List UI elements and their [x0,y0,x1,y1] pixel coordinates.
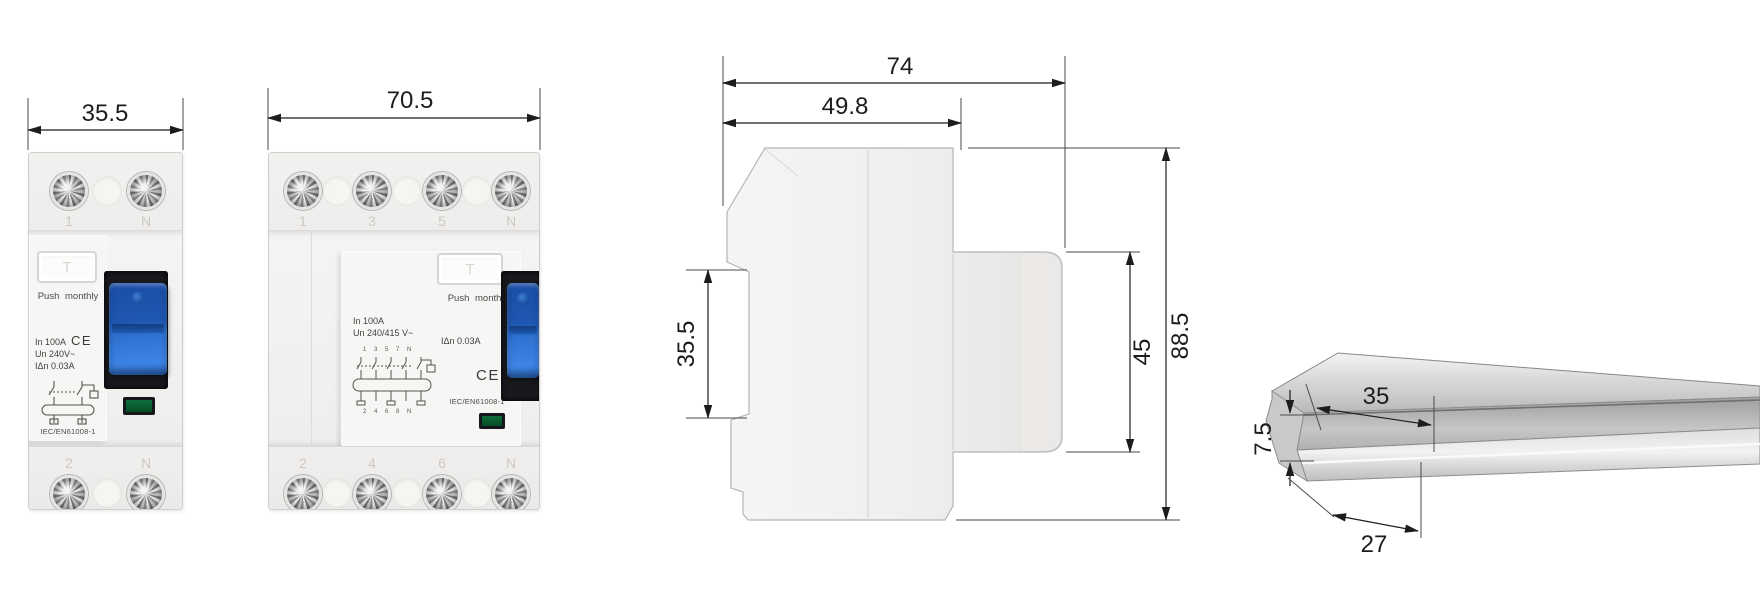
terminal-screw [127,172,165,210]
seal-plug [93,479,121,507]
terminal-screw [353,172,391,210]
terminal-label: N [504,213,518,229]
terminal-label: 1 [62,213,76,229]
test-button-letter: T [62,259,71,276]
dim-label-70-5: 70.5 [387,87,434,114]
ratings-text-2p: In 100ACE Un 240V~ IΔn 0.03A [35,335,92,372]
top-terminal-block-4p: 1 3 5 N [269,153,539,231]
dim-label-49-8: 49.8 [822,93,869,120]
seal-plug [463,177,491,205]
toggle-switch-4p [507,283,539,378]
indicator-lens-green [126,400,152,412]
wiring-diagram-2p [34,379,106,425]
terminal-label: 3 [365,213,379,229]
terminal-screw [50,475,88,510]
standard-label: IEC/EN61008-1 [31,427,105,436]
ratings-text-4p: In 100A Un 240/415 V~ [353,315,413,339]
terminal-screw [284,172,322,210]
residual-current: IΔn 0.03A [441,335,481,347]
indicator-lens-green [482,416,502,426]
test-button: T [437,253,503,285]
dim-label-35-5-side: 35.5 [673,321,700,368]
wiring-diagram-4p [349,355,437,407]
din-rail-drawing [1266,353,1760,481]
front-face-2p: T Push monthly In 100ACE Un 240V~ IΔn 0.… [29,231,182,446]
status-indicator-4p [479,413,505,429]
terminal-label: 5 [435,213,449,229]
toggle-switch-2p [109,283,167,375]
rated-current: In 100A [35,337,66,347]
wiring-labels-bottom: 2 4 6 8 N [363,409,414,415]
terminal-screw [353,475,391,510]
seal-plug [463,479,491,507]
seal-plug [323,479,351,507]
dim-4pole-width: 70.5 [268,87,540,150]
seal-plug [393,177,421,205]
wiring-labels-top: 1 3 5 7 N [363,347,414,353]
test-button-letter: T [465,261,474,278]
dim-label-74: 74 [887,53,914,80]
terminal-label: 1 [296,213,310,229]
terminal-label: 2 [296,455,310,471]
rccb-dimension-drawing: 35.5 70.5 74 49.8 35.5 [0,0,1760,616]
ce-mark: CE [476,367,500,384]
top-terminal-block-2p: 1 N [29,153,182,231]
terminal-label: N [139,455,153,471]
dimension-overlay: 35.5 70.5 74 49.8 35.5 [0,0,1760,616]
terminal-screw [50,172,88,210]
dim-label-27: 27 [1361,531,1388,558]
bottom-terminal-block-2p: 2 N [29,446,182,510]
rated-voltage: Un 240/415 V~ [353,327,413,339]
terminal-label: N [504,455,518,471]
panel-seam [311,231,312,446]
terminal-label: N [139,213,153,229]
dim-side-body-depth: 49.8 [723,93,961,150]
front-face-4p: T Push monthly In 100A Un 240/415 V~ IΔn… [269,231,539,446]
dim-label-35-5-front: 35.5 [82,100,129,127]
rated-current: In 100A [353,315,413,327]
push-monthly-label: Push monthly [31,291,105,302]
test-button: T [37,251,97,283]
ce-mark: CE [71,333,92,348]
dim-label-35-rail: 35 [1363,383,1390,410]
dim-2pole-width: 35.5 [28,98,183,150]
terminal-label: 6 [435,455,449,471]
terminal-label: 4 [365,455,379,471]
dim-side-front-height: 45 [1066,252,1156,452]
dim-label-88-5: 88.5 [1167,313,1194,360]
dim-side-din-slot: 35.5 [673,270,747,418]
terminal-label: 2 [62,455,76,471]
side-profile-drawing [727,148,1062,520]
status-indicator-2p [123,397,155,415]
rccb-4pole-front-view: 1 3 5 N T Push monthly In 100A Un 240/41… [268,152,540,510]
terminal-screw [423,475,461,510]
seal-plug [93,177,121,205]
dim-label-7-5: 7.5 [1250,422,1277,455]
rated-voltage: Un 240V~ [35,348,92,360]
terminal-screw [423,172,461,210]
terminal-screw [492,172,530,210]
terminal-screw [284,475,322,510]
dim-label-45: 45 [1129,339,1156,366]
terminal-screw [127,475,165,510]
seal-plug [393,479,421,507]
residual-current: IΔn 0.03A [35,360,92,372]
rccb-2pole-front-view: 1 N T Push monthly In 100ACE Un 240V~ IΔ… [28,152,183,510]
bottom-terminal-block-4p: 2 4 6 N [269,446,539,510]
seal-plug [323,177,351,205]
terminal-screw [492,475,530,510]
